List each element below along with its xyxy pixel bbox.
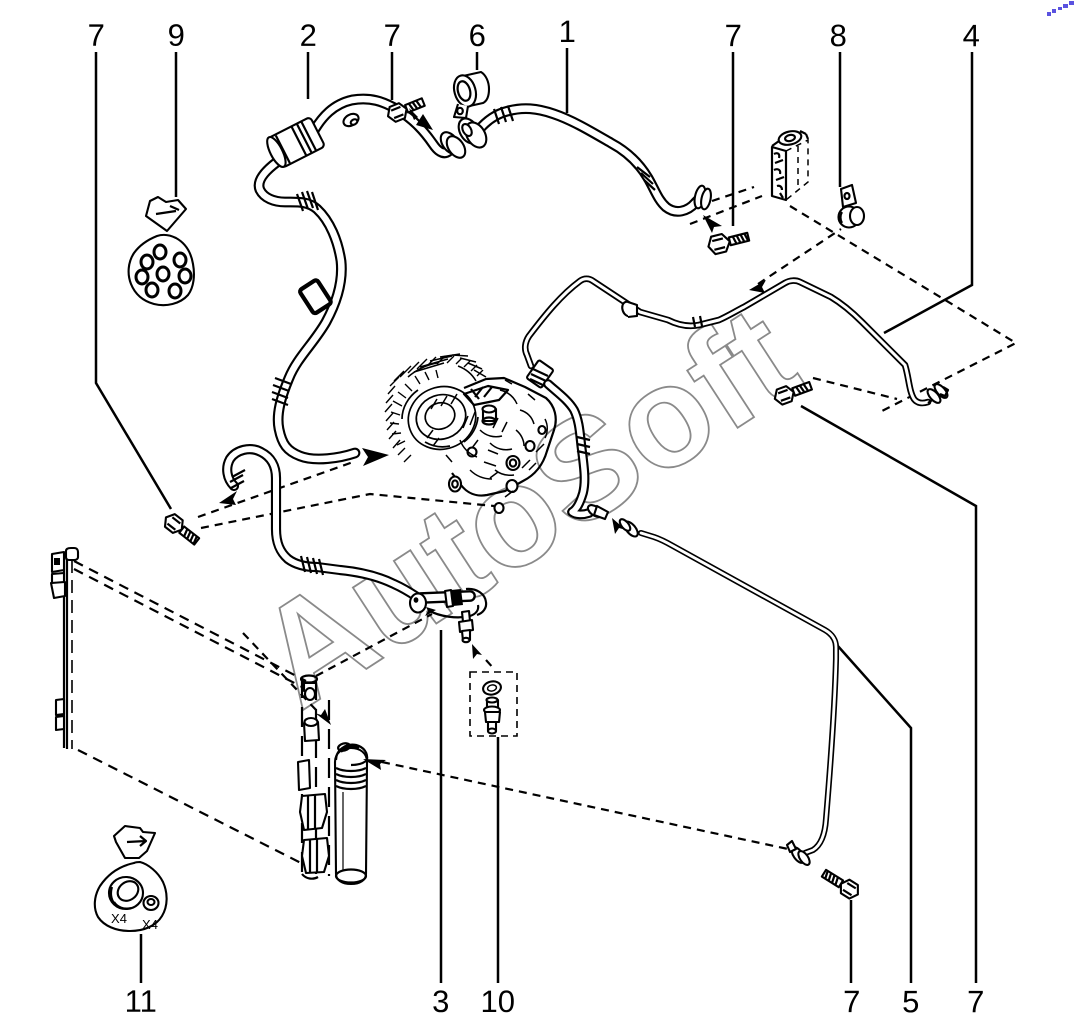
svg-text:6: 6 bbox=[469, 18, 486, 53]
svg-text:5: 5 bbox=[902, 984, 919, 1019]
svg-text:1: 1 bbox=[559, 14, 576, 49]
svg-text:11: 11 bbox=[125, 984, 157, 1019]
svg-text:7: 7 bbox=[967, 984, 984, 1019]
svg-text:8: 8 bbox=[830, 18, 847, 53]
svg-text:7: 7 bbox=[384, 18, 401, 53]
svg-text:10: 10 bbox=[480, 984, 515, 1019]
svg-text:7: 7 bbox=[725, 18, 742, 53]
svg-text:2: 2 bbox=[300, 18, 317, 53]
svg-text:4: 4 bbox=[963, 18, 980, 53]
svg-text:3: 3 bbox=[432, 984, 449, 1019]
svg-text:7: 7 bbox=[88, 18, 105, 53]
svg-text:9: 9 bbox=[168, 18, 185, 53]
svg-text:X4: X4 bbox=[142, 917, 158, 932]
svg-text:7: 7 bbox=[843, 984, 860, 1019]
svg-text:X4: X4 bbox=[111, 911, 127, 926]
